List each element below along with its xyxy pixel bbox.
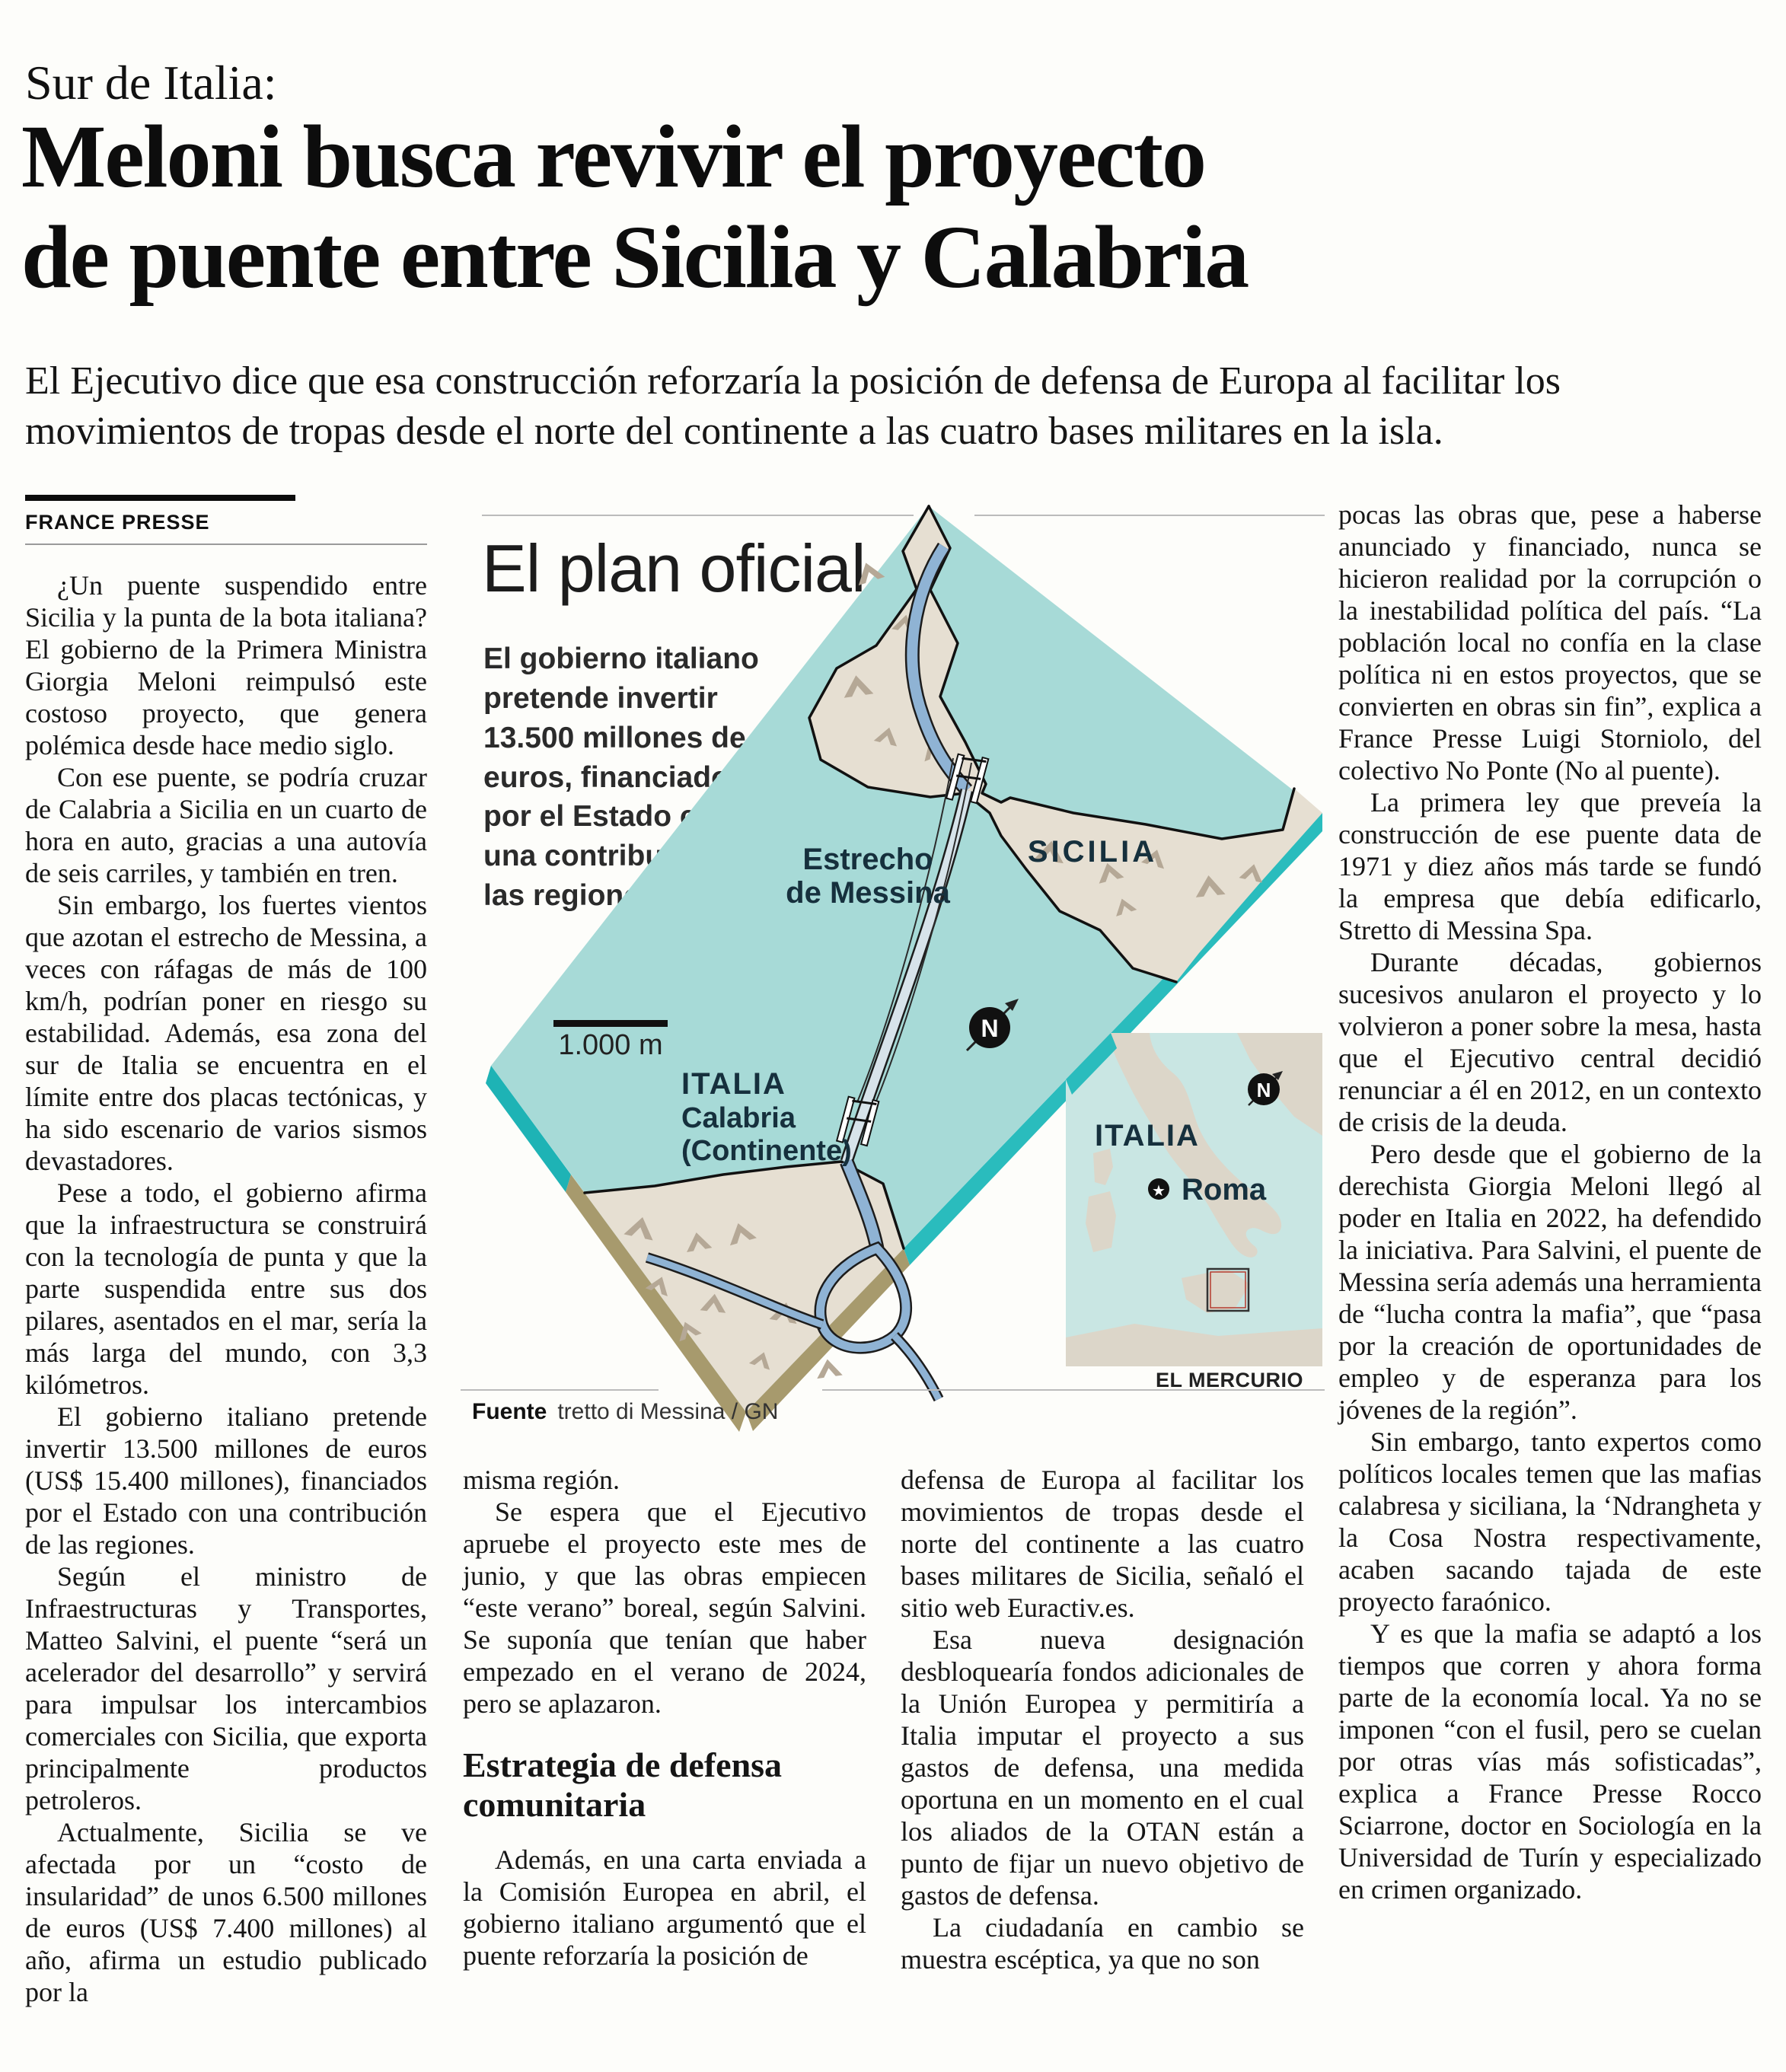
paragraph: Con ese puente, se podría cruzar de Cala… — [25, 761, 427, 889]
column-1: ¿Un puente suspendido entre Sicilia y la… — [25, 569, 427, 2008]
headline-line-1: Meloni busca revivir el proyecto — [21, 107, 1248, 207]
paragraph: El gobierno italiano pretende invertir 1… — [25, 1401, 427, 1560]
roma-label: Roma — [1182, 1173, 1267, 1207]
paragraph: Se espera que el Ejecutivo apruebe el pr… — [463, 1496, 866, 1720]
byline-block: FRANCE PRESSE — [25, 495, 427, 545]
scale-bar — [553, 1020, 668, 1027]
byline-rule-thin — [25, 544, 427, 545]
newspaper-page: Sur de Italia: Meloni busca revivir el p… — [0, 0, 1786, 2072]
paragraph: defensa de Europa al facilitar los movim… — [901, 1464, 1304, 1624]
paragraph: Sin embargo, tanto expertos como polític… — [1338, 1426, 1762, 1618]
inset-italia-label: ITALIA — [1095, 1119, 1200, 1152]
paragraph: La ciudadanía en cambio se muestra escép… — [901, 1911, 1304, 1975]
paragraph: Actualmente, Sicilia se ve afectada por … — [25, 1816, 427, 2008]
paragraph: Y es que la mafia se adaptó a los tiempo… — [1338, 1618, 1762, 1905]
paragraph: Durante décadas, gobiernos sucesivos anu… — [1338, 946, 1762, 1138]
kicker: Sur de Italia: — [25, 55, 277, 111]
strait-label-line2: de Messina — [786, 876, 950, 910]
infographic: El plan oficial El gobierno italiano pre… — [457, 487, 1325, 1439]
paragraph: Sin embargo, los fuertes vientos que azo… — [25, 889, 427, 1177]
calabria-label: Calabria — [681, 1102, 796, 1134]
column-2: misma región. Se espera que el Ejecutivo… — [463, 1464, 866, 1972]
infographic-source: Fuentetretto di Messina / GN — [472, 1399, 778, 1425]
source-label: Fuente — [472, 1399, 547, 1424]
scale-label: 1.000 m — [558, 1029, 662, 1061]
svg-text:N: N — [981, 1015, 998, 1042]
paragraph: Además, en una carta enviada a la Comisi… — [463, 1844, 866, 1972]
roma-star-icon: ★ — [1152, 1183, 1166, 1200]
byline: FRANCE PRESSE — [25, 511, 427, 534]
strait-label-line1: Estrecho — [802, 843, 933, 876]
headline: Meloni busca revivir el proyecto de puen… — [21, 107, 1248, 308]
paragraph: misma región. — [463, 1464, 866, 1496]
paragraph: Pero desde que el gobierno de la derechi… — [1338, 1138, 1762, 1426]
paragraph: Esa nueva designación desbloquearía fond… — [901, 1624, 1304, 1911]
sicilia-label: SICILIA — [1028, 835, 1157, 869]
paragraph: Pese a todo, el gobierno afirma que la i… — [25, 1177, 427, 1401]
headline-line-2: de puente entre Sicilia y Calabria — [21, 207, 1248, 308]
inset-map: ITALIA ★ Roma N — [1066, 1033, 1322, 1366]
messina-strait-map: 1.000 m Estrecho de Messina SICILIA ITAL… — [457, 487, 1325, 1439]
section-subhead: Estrategia de defensa comunitaria — [463, 1745, 866, 1824]
source-text: tretto di Messina / GN — [557, 1399, 778, 1424]
column-4: pocas las obras que, pese a haberse anun… — [1338, 499, 1762, 1905]
infographic-credit: EL MERCURIO — [1156, 1369, 1303, 1392]
continente-label: (Continente) — [681, 1135, 852, 1167]
column-3: defensa de Europa al facilitar los movim… — [901, 1464, 1304, 1975]
byline-rule-thick — [25, 495, 295, 501]
paragraph: La primera ley que preveía la construcci… — [1338, 786, 1762, 946]
paragraph: pocas las obras que, pese a haberse anun… — [1338, 499, 1762, 786]
subheadline: El Ejecutivo dice que esa construcción r… — [25, 356, 1768, 457]
italia-label: ITALIA — [681, 1067, 786, 1101]
paragraph: ¿Un puente suspendido entre Sicilia y la… — [25, 569, 427, 761]
svg-text:N: N — [1257, 1079, 1271, 1101]
paragraph: Según el ministro de Infraestructuras y … — [25, 1560, 427, 1816]
divider — [461, 1389, 659, 1391]
